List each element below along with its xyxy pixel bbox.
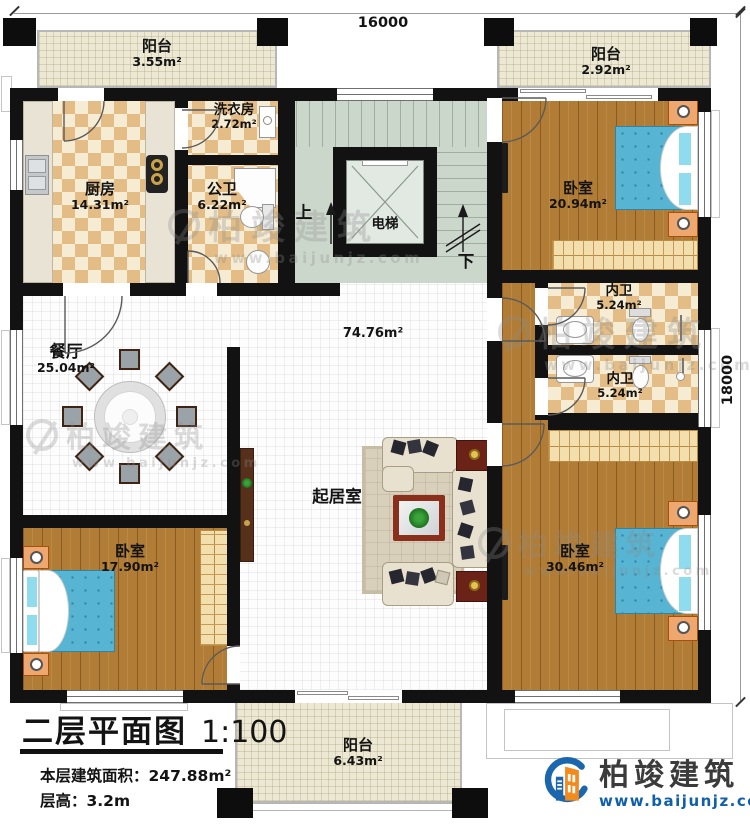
wall xyxy=(188,155,278,165)
lamp xyxy=(677,621,690,634)
company-name: 柏竣建筑 xyxy=(599,760,750,792)
cushion xyxy=(458,477,473,492)
company-logo: 柏竣建筑 www.baijunjz.com xyxy=(543,757,750,813)
lazy-susan xyxy=(122,409,138,425)
wall xyxy=(278,88,295,296)
balcony-edge-lines xyxy=(233,803,464,811)
pillow xyxy=(678,576,692,612)
cushion xyxy=(460,545,475,560)
door-opening xyxy=(63,283,130,296)
wall xyxy=(548,345,698,355)
sink-basin xyxy=(28,159,46,173)
window-sill xyxy=(711,328,720,428)
wall xyxy=(227,684,240,703)
basin-oval xyxy=(563,360,587,377)
cushion xyxy=(405,571,420,586)
balcony-top-left xyxy=(37,30,277,88)
elevator-door xyxy=(362,160,408,166)
door-opening xyxy=(227,646,240,684)
wardrobe xyxy=(552,240,698,270)
pillow xyxy=(26,614,38,646)
tv xyxy=(502,143,508,193)
window xyxy=(698,112,711,217)
eaves-outline xyxy=(504,709,670,751)
pillow xyxy=(26,576,38,608)
chair xyxy=(119,463,140,484)
company-logo-icon xyxy=(543,757,589,813)
shower-rod xyxy=(680,315,682,341)
door-opening xyxy=(58,88,104,101)
nightstand xyxy=(23,546,49,569)
wall xyxy=(10,283,340,296)
wardrobe xyxy=(200,530,228,646)
balcony-top-right xyxy=(497,30,711,88)
door-opening xyxy=(186,283,217,296)
wall xyxy=(227,528,240,646)
title-block: 二层平面图 1:100 xyxy=(22,706,287,751)
wall xyxy=(548,413,698,430)
title-underline xyxy=(20,749,223,754)
wall xyxy=(502,270,698,283)
dimension-line-right xyxy=(740,13,741,703)
nightstand xyxy=(668,616,698,641)
window xyxy=(67,690,183,703)
wash-basin xyxy=(246,250,270,274)
door-opening xyxy=(487,423,502,466)
chair xyxy=(176,406,197,427)
pillow xyxy=(678,132,692,166)
toilet-tank xyxy=(629,308,651,317)
sink-basin xyxy=(28,176,46,190)
lamp xyxy=(30,551,43,564)
cushion xyxy=(407,439,422,454)
window-sill xyxy=(1,330,10,425)
wardrobe xyxy=(548,430,698,462)
sliding-door xyxy=(586,95,652,99)
sofa-chaise xyxy=(382,466,414,492)
decor-bowl xyxy=(469,449,480,460)
washing-machine xyxy=(259,106,276,138)
plant xyxy=(409,508,429,528)
chair xyxy=(119,349,140,370)
toilet-bowl xyxy=(632,318,649,342)
column xyxy=(690,18,717,46)
burner xyxy=(151,173,163,185)
sliding-door xyxy=(520,89,586,93)
floor-area-line: 本层建筑面积：247.88m² xyxy=(40,764,231,786)
wall xyxy=(487,88,502,690)
window xyxy=(10,140,23,190)
plant xyxy=(242,478,252,488)
basin-oval xyxy=(563,321,587,338)
stair-flight-top xyxy=(296,101,486,147)
lamp xyxy=(30,658,43,671)
window xyxy=(10,558,23,653)
elevator-car xyxy=(346,160,424,244)
door-opening xyxy=(487,298,502,341)
window-sill xyxy=(711,110,720,218)
dimension-top-value: 16000 xyxy=(347,15,419,31)
door-opening xyxy=(535,378,548,415)
column xyxy=(452,788,488,818)
column xyxy=(257,18,288,46)
kitchen-sink xyxy=(25,155,49,195)
window xyxy=(337,88,433,101)
dimension-tick xyxy=(9,6,20,17)
plan-scale: 1:100 xyxy=(201,715,287,750)
dimension-line-top xyxy=(14,13,741,14)
window xyxy=(698,330,711,427)
pillow xyxy=(678,534,692,570)
sliding-door xyxy=(297,691,348,695)
floor-height-line: 层高：3.2m xyxy=(40,789,130,811)
stove xyxy=(146,155,168,193)
toilet-bowl xyxy=(240,206,264,228)
door-opening xyxy=(175,108,188,150)
nightstand xyxy=(23,653,49,676)
lamp xyxy=(677,217,690,230)
decor-bowl xyxy=(469,580,480,591)
column xyxy=(217,788,253,818)
column xyxy=(484,18,514,46)
dimension-right-value: 18000 xyxy=(720,344,736,416)
wall xyxy=(10,515,240,528)
toilet-bowl xyxy=(632,365,649,389)
tv xyxy=(502,545,508,600)
stair-flight-right xyxy=(437,150,487,257)
nightstand xyxy=(668,212,698,237)
washer-door xyxy=(263,116,272,125)
lamp xyxy=(677,506,690,519)
window xyxy=(10,330,23,425)
window-sill xyxy=(1,558,10,653)
burner xyxy=(151,159,163,171)
lamp xyxy=(677,105,690,118)
vanity-sink xyxy=(556,316,594,344)
plan-title: 二层平面图 xyxy=(22,706,187,751)
window xyxy=(515,690,620,703)
decor-knob xyxy=(244,520,250,526)
door-opening xyxy=(487,98,502,142)
nightstand xyxy=(668,100,698,125)
pillow xyxy=(678,172,692,206)
nightstand xyxy=(668,501,698,526)
wall xyxy=(227,347,240,520)
tv-cabinet xyxy=(240,448,254,562)
floor-plan: 16000 18000 xyxy=(0,0,750,828)
vanity-sink xyxy=(556,355,594,383)
shower-head xyxy=(676,372,685,381)
door-opening xyxy=(535,288,548,325)
sliding-door xyxy=(348,696,399,700)
column xyxy=(3,18,36,46)
chair xyxy=(62,406,83,427)
company-website: www.baijunjz.com xyxy=(599,792,750,810)
toilet-tank xyxy=(629,356,651,364)
window xyxy=(698,515,711,630)
